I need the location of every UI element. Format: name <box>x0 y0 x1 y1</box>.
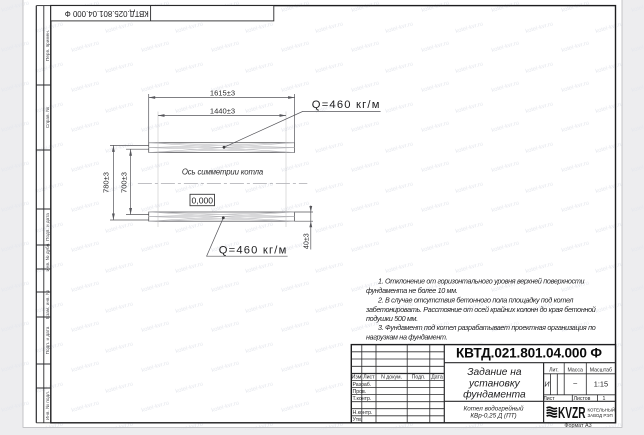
svg-text:Инв. № подл.: Инв. № подл. <box>45 391 50 420</box>
svg-text:700±3: 700±3 <box>119 172 128 193</box>
svg-text:Задание на: Задание на <box>467 367 522 378</box>
svg-text:Изм: Изм <box>352 375 362 381</box>
svg-text:Т.контр.: Т.контр. <box>353 396 372 402</box>
svg-text:Инв. № дубл.: Инв. № дубл. <box>45 242 50 271</box>
svg-text:Лит.: Лит. <box>549 368 559 374</box>
svg-text:40±3: 40±3 <box>301 233 310 249</box>
svg-text:1615±3: 1615±3 <box>210 88 235 97</box>
svg-text:Пров.: Пров. <box>353 389 367 395</box>
svg-text:Листов: Листов <box>574 396 591 402</box>
svg-text:KVZR: KVZR <box>558 405 586 422</box>
svg-text:КВр-0,25 Д (ПТ): КВр-0,25 Д (ПТ) <box>470 413 516 420</box>
svg-text:Разраб.: Разраб. <box>353 382 372 388</box>
svg-text:1. Отклонение от горизонтально: 1. Отклонение от горизонтального уровня … <box>378 277 585 286</box>
svg-text:фундамента не более 10 мм.: фундамента не более 10 мм. <box>366 286 458 295</box>
svg-text:Q=460 кг/м: Q=460 кг/м <box>219 244 288 256</box>
svg-text:КВТД.021.801.04.000 Ф: КВТД.021.801.04.000 Ф <box>456 346 602 361</box>
svg-text:0,000: 0,000 <box>192 195 214 205</box>
svg-text:Формат А3: Формат А3 <box>564 423 591 429</box>
svg-text:Котел водогрейный: Котел водогрейный <box>464 405 524 413</box>
svg-text:Лист: Лист <box>363 375 375 381</box>
svg-text:КОТЕЛЬНЫЙ: КОТЕЛЬНЫЙ <box>588 408 616 413</box>
svg-text:Ось симметрии котла: Ось симметрии котла <box>182 168 264 177</box>
svg-text:1:15: 1:15 <box>594 380 608 389</box>
svg-text:–: – <box>573 381 577 388</box>
svg-text:Лист: Лист <box>543 396 555 402</box>
svg-text:Масштаб: Масштаб <box>590 368 612 374</box>
svg-text:1: 1 <box>603 396 606 402</box>
svg-text:нагрузкам на фундамент.: нагрузкам на фундамент. <box>366 332 448 341</box>
svg-text:Q=460 кг/м: Q=460 кг/м <box>312 99 381 111</box>
svg-text:780±3: 780±3 <box>101 172 110 193</box>
svg-text:N докум.: N докум. <box>381 375 402 381</box>
svg-text:2. В случае отсутствия бетонно: 2. В случае отсутствия бетонного пола пл… <box>377 296 573 305</box>
svg-text:Подп.: Подп. <box>412 375 426 381</box>
svg-text:фундамента: фундамента <box>463 389 526 401</box>
svg-text:Дата: Дата <box>431 375 443 381</box>
svg-text:Справ. №: Справ. № <box>45 107 50 128</box>
svg-text:ЗАВОД РЭП: ЗАВОД РЭП <box>588 413 613 418</box>
svg-text:Н.контр.: Н.контр. <box>353 410 373 416</box>
svg-text:Подп. и дата: Подп. и дата <box>45 213 50 241</box>
svg-text:Масса: Масса <box>568 368 583 374</box>
svg-text:Перв. примен.: Перв. примен. <box>45 30 50 61</box>
svg-text:забетонировать. Расстояние от: забетонировать. Расстояние от осей крайн… <box>365 305 596 314</box>
svg-text:3. Фундамент под котел разраба: 3. Фундамент под котел разрабатывает про… <box>378 323 596 332</box>
svg-text:Подп. и дата: Подп. и дата <box>45 326 50 354</box>
svg-text:подушки 500 мм.: подушки 500 мм. <box>366 314 418 323</box>
svg-text:установку: установку <box>468 378 521 389</box>
svg-text:Утв.: Утв. <box>353 417 363 423</box>
svg-text:1440±3: 1440±3 <box>210 106 235 115</box>
svg-text:КВТД.025.801.04.000 Ф: КВТД.025.801.04.000 Ф <box>65 9 149 19</box>
svg-text:Взам. инв. №: Взам. инв. № <box>45 290 50 319</box>
